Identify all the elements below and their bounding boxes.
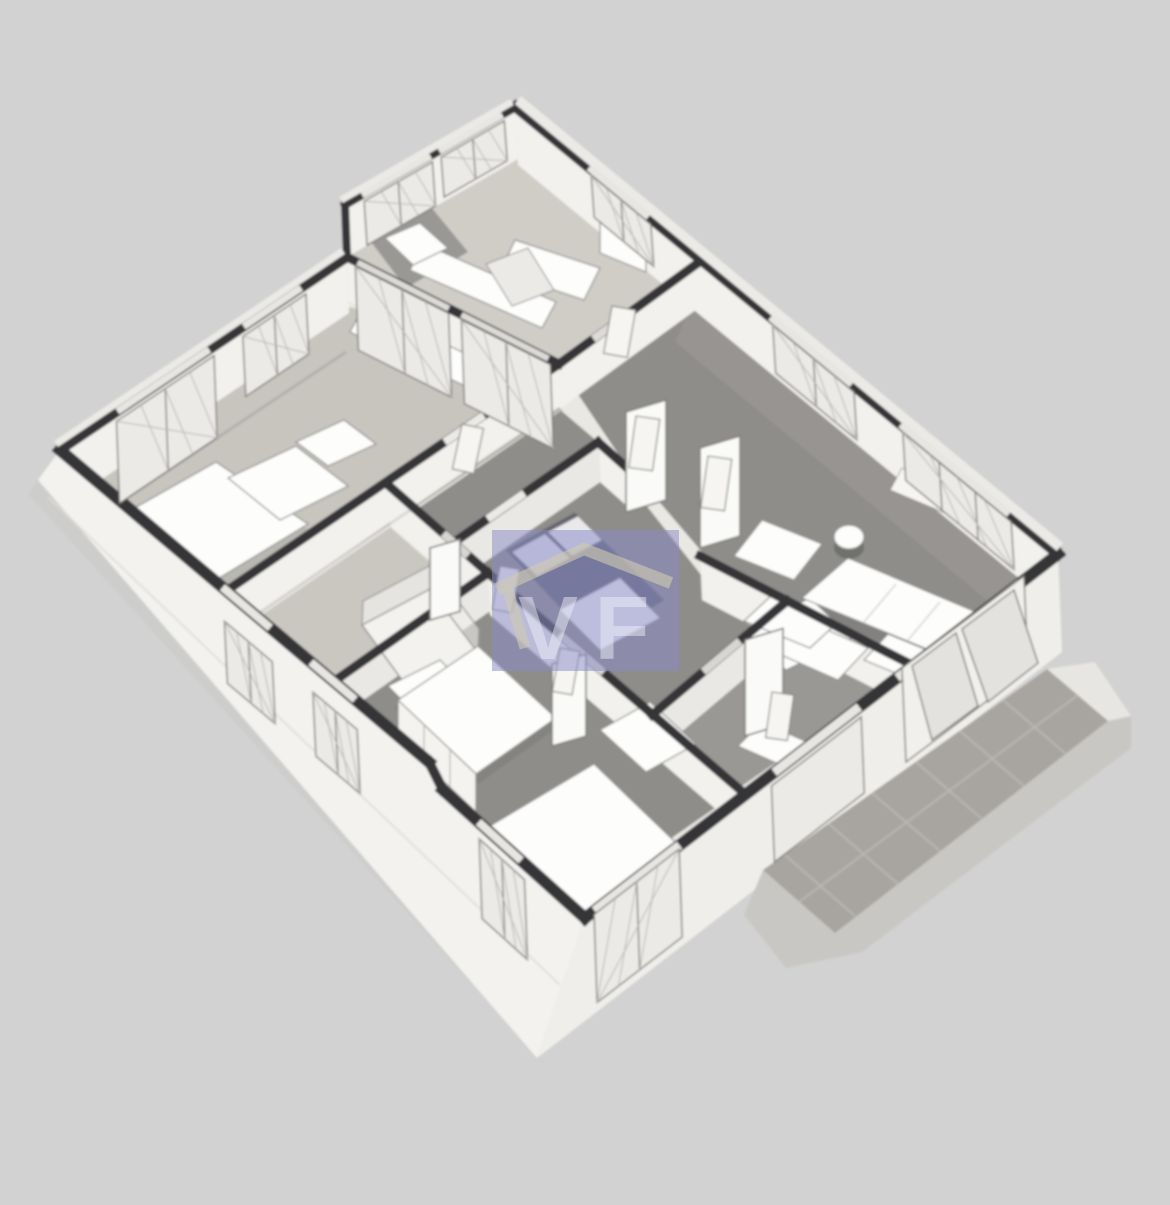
- svg-text:V: V: [518, 579, 578, 679]
- svg-text:F: F: [595, 579, 650, 679]
